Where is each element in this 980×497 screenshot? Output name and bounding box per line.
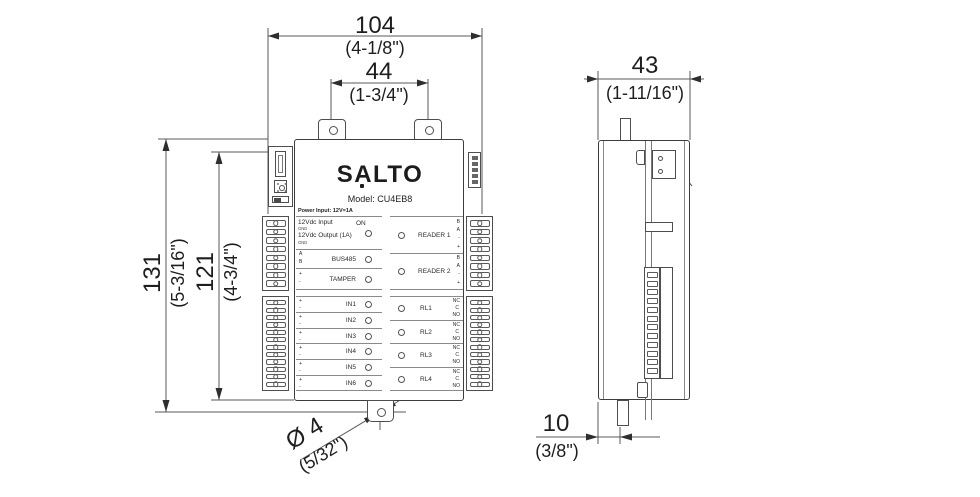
mounting-hole-bottom xyxy=(377,408,386,417)
reader1-label: READER 1 xyxy=(418,232,451,239)
screw-terminal xyxy=(266,263,286,270)
pin-label: - xyxy=(299,306,301,311)
pin-label: + xyxy=(299,331,302,336)
antenna-stub xyxy=(620,118,631,141)
pin-label: NO xyxy=(453,313,461,318)
connector-pin xyxy=(472,168,478,172)
bracket-hook xyxy=(636,150,645,165)
terminal-block-right-upper xyxy=(466,216,493,291)
pin-label: + xyxy=(457,281,460,286)
terminal-backing xyxy=(660,267,673,379)
screw-terminal xyxy=(266,330,286,335)
input-led xyxy=(365,301,372,308)
pin-label: - xyxy=(299,353,301,358)
relay-led xyxy=(398,305,405,312)
relay-label: RL1 xyxy=(420,305,432,312)
dim-side-width-mm: 43 xyxy=(632,54,659,78)
power-io-cell: 12Vdc Input GND 12Vdc Output (1A) GND ON xyxy=(296,216,382,249)
terminal-cell xyxy=(647,316,658,322)
screw-terminal xyxy=(266,359,286,364)
terminal-block-left-upper xyxy=(262,216,289,291)
input-label: IN3 xyxy=(346,333,356,340)
pin-label: + xyxy=(299,315,302,320)
dim-side-width-in: (1-11/16") xyxy=(606,84,684,102)
tamper-row: + - TAMPER xyxy=(296,268,382,290)
screw-dots xyxy=(277,183,280,186)
pin-label: - xyxy=(299,280,301,285)
connector-pin xyxy=(472,156,478,160)
screw-terminal xyxy=(470,345,490,350)
reader2-row: READER 2 B A - + xyxy=(390,253,463,290)
screw-terminal xyxy=(266,255,286,262)
screw-terminal xyxy=(266,220,286,227)
pin-label: - xyxy=(458,236,460,241)
side-bottom-tab xyxy=(617,400,629,426)
screw-terminal xyxy=(266,246,286,253)
dim-height-outer-mm: 131 xyxy=(141,253,165,293)
screw-terminal xyxy=(470,220,490,227)
pin-label: C xyxy=(455,353,459,358)
power-block: 12Vdc Input GND 12Vdc Output (1A) GND ON… xyxy=(296,216,382,290)
readers-block: READER 1 B A - + READER 2 B A - + xyxy=(390,216,463,290)
connector-pin xyxy=(472,162,478,166)
input-row: + - IN1 xyxy=(296,296,382,312)
switch-knob xyxy=(274,198,281,202)
pin-label: - xyxy=(299,385,301,390)
screw-terminal xyxy=(470,280,490,287)
pin-label: A xyxy=(457,264,460,269)
tamper-label: TAMPER xyxy=(329,276,356,283)
screw-terminal xyxy=(266,322,286,327)
input-label: IN4 xyxy=(346,348,356,355)
mounting-tab-top-right xyxy=(414,119,442,140)
terminal-cell xyxy=(647,307,658,313)
connector-pin xyxy=(472,174,478,178)
dim-height-inner-in: (4-3/4") xyxy=(222,242,240,301)
relays-block: RL1 NC C NO RL2 NC C NO RL3 NC C NO xyxy=(390,296,463,391)
terminal-cell xyxy=(647,368,658,374)
screw-terminal xyxy=(470,337,490,342)
input-row: + - IN5 xyxy=(296,359,382,375)
pin-label: C xyxy=(455,330,459,335)
terminal-cell xyxy=(647,281,658,287)
terminal-cell xyxy=(647,289,658,295)
relay-row: RL1 NC C NO xyxy=(390,296,463,320)
bus485-label: BUS485 xyxy=(332,256,356,263)
reader1-led xyxy=(398,232,405,239)
pin-label: B xyxy=(457,256,460,261)
inner-edge-line xyxy=(603,141,604,399)
relay-label: RL2 xyxy=(420,329,432,336)
connector-pin xyxy=(472,180,478,184)
pin-label: + xyxy=(299,346,302,351)
power-line-label: 12Vdc Output (1A) xyxy=(298,232,352,239)
bracket-hole xyxy=(658,169,663,174)
pin-label: NO xyxy=(453,360,461,365)
terminal-block-left-lower xyxy=(262,296,289,391)
screw-terminal xyxy=(266,345,286,350)
terminal-cell xyxy=(647,351,658,357)
pin-label: NC xyxy=(453,346,460,351)
relay-label: RL4 xyxy=(420,376,432,383)
dim-side-offset-in: (3/8") xyxy=(535,442,578,460)
pin-label: - xyxy=(299,369,301,374)
screw-terminal xyxy=(470,374,490,379)
side-component-panel xyxy=(268,146,293,207)
input-row: + - IN2 xyxy=(296,312,382,328)
screw-terminal xyxy=(470,300,490,305)
dim-height-inner-mm: 121 xyxy=(194,252,218,292)
relay-row: RL2 NC C NO xyxy=(390,320,463,344)
pin-label: + xyxy=(299,362,302,367)
jack-slot xyxy=(278,155,283,173)
pin-label: NO xyxy=(453,384,461,389)
pin-label: NC xyxy=(453,323,460,328)
dim-top-inner-mm: 44 xyxy=(366,60,393,84)
slide-switch xyxy=(272,196,289,203)
button-center xyxy=(279,185,285,191)
mounting-hole xyxy=(329,126,338,135)
power-heading: Power Input: 12V=1A xyxy=(298,208,353,214)
screw-terminal xyxy=(266,300,286,305)
input-label: IN1 xyxy=(346,301,356,308)
screw-terminal xyxy=(470,367,490,372)
mounting-bracket xyxy=(652,150,676,179)
power-led xyxy=(365,230,372,237)
terminal-cell xyxy=(647,298,658,304)
screw-terminal xyxy=(266,229,286,236)
pin-label: NC xyxy=(453,370,460,375)
screw-terminal xyxy=(266,308,286,313)
side-terminal-strip xyxy=(644,267,660,379)
reader2-led xyxy=(398,268,405,275)
pin-label: NC xyxy=(453,299,460,304)
screw-terminal xyxy=(470,315,490,320)
relay-led xyxy=(398,352,405,359)
screw-terminal xyxy=(266,352,286,357)
pin-label: A xyxy=(457,228,460,233)
gnd-label: GND xyxy=(298,227,307,231)
screw-terminal xyxy=(470,229,490,236)
mounting-tab-top-left xyxy=(318,119,346,140)
screw-terminal xyxy=(470,382,490,387)
dim-top-inner-in: (1-3/4") xyxy=(349,86,408,104)
input-label: IN5 xyxy=(346,364,356,371)
pin-label: + xyxy=(299,299,302,304)
screw-terminal xyxy=(470,359,490,364)
screw-terminal xyxy=(470,237,490,244)
pin-label: B xyxy=(457,220,460,225)
pin-label: C xyxy=(455,377,459,382)
pin-label: B xyxy=(299,260,302,265)
input-led xyxy=(365,333,372,340)
input-led xyxy=(365,348,372,355)
screw-terminal xyxy=(470,330,490,335)
pin-label: - xyxy=(299,322,301,327)
relay-led xyxy=(398,376,405,383)
screw-terminal xyxy=(470,246,490,253)
screw-terminal xyxy=(266,367,286,372)
screw-terminal xyxy=(266,280,286,287)
screw-terminal xyxy=(470,272,490,279)
bottom-clip xyxy=(637,382,648,398)
connector-jack xyxy=(275,151,286,177)
dim-top-outer-mm: 104 xyxy=(355,14,395,38)
dim-height-outer-in: (5-3/16") xyxy=(169,238,187,307)
inner-edge-line xyxy=(684,141,685,399)
pin-label: + xyxy=(299,378,302,383)
on-label: ON xyxy=(356,220,366,227)
model-label: Model: CU4EB8 xyxy=(348,194,413,204)
pin-label: NO xyxy=(453,337,461,342)
screw-terminal xyxy=(266,272,286,279)
inputs-block: + - IN1 + - IN2 + - IN3 + - IN4 xyxy=(296,296,382,391)
input-row: + - IN3 xyxy=(296,328,382,344)
salto-logo: SALTO xyxy=(337,161,424,189)
bracket-hole xyxy=(658,156,663,161)
screw-terminal xyxy=(266,315,286,320)
logo-accent-dot xyxy=(360,184,364,188)
terminal-cell xyxy=(647,359,658,365)
terminal-cell xyxy=(647,333,658,339)
screw-terminal xyxy=(470,322,490,327)
relay-label: RL3 xyxy=(420,352,432,359)
pin-label: + xyxy=(457,245,460,250)
terminal-block-right-lower xyxy=(466,296,493,391)
pin-label: C xyxy=(455,306,459,311)
reader2-label: READER 2 xyxy=(418,268,451,275)
input-label: IN6 xyxy=(346,380,356,387)
terminal-cell xyxy=(647,272,658,278)
pin-label: + xyxy=(299,272,302,277)
bus485-row: A B BUS485 xyxy=(296,249,382,268)
bus485-led xyxy=(365,256,372,263)
screw-terminal xyxy=(266,237,286,244)
dim-side-offset-mm: 10 xyxy=(543,412,570,436)
relay-row: RL3 NC C NO xyxy=(390,343,463,367)
pin-label: - xyxy=(458,272,460,277)
screw-terminal xyxy=(266,337,286,342)
tamper-button xyxy=(274,180,287,193)
pin-label: A xyxy=(299,252,302,257)
reader1-row: READER 1 B A - + xyxy=(390,216,463,253)
input-led xyxy=(365,364,372,371)
dim-top-outer-in: (4-1/8") xyxy=(345,39,404,57)
terminal-cell xyxy=(647,324,658,330)
input-led xyxy=(365,380,372,387)
screw-terminal xyxy=(470,308,490,313)
input-label: IN2 xyxy=(346,317,356,324)
gnd-label: GND xyxy=(298,241,307,245)
mounting-hole xyxy=(425,126,434,135)
connector-stub xyxy=(645,222,673,232)
technical-drawing: 104 (4-1/8") 44 (1-3/4") 131 (5-3/16") 1… xyxy=(0,0,980,497)
screw-terminal xyxy=(470,352,490,357)
screw-terminal xyxy=(470,263,490,270)
terminal-cell xyxy=(647,342,658,348)
relay-led xyxy=(398,329,405,336)
screw-terminal xyxy=(470,255,490,262)
pin-label: - xyxy=(299,338,301,343)
input-row: + - IN4 xyxy=(296,343,382,359)
tamper-led xyxy=(365,276,372,283)
screw-terminal xyxy=(266,382,286,387)
input-row: + - IN6 xyxy=(296,375,382,391)
mounting-tab-bottom xyxy=(367,400,394,422)
screw-terminal xyxy=(266,374,286,379)
pin-header-connector xyxy=(468,152,481,188)
relay-row: RL4 NC C NO xyxy=(390,367,463,391)
input-led xyxy=(365,317,372,324)
